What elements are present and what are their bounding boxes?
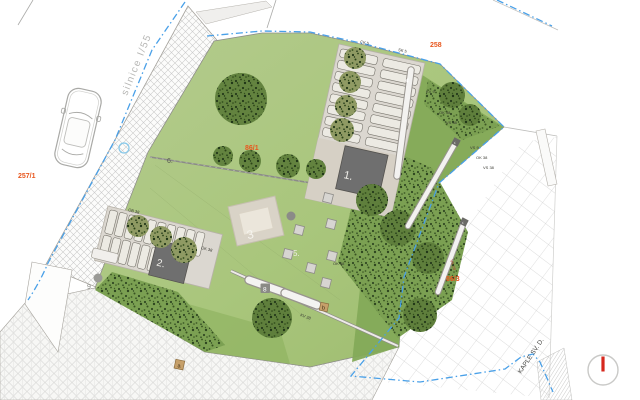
- svg-text:VS 38: VS 38: [483, 165, 495, 170]
- site-plan-page: 1. 2. 3: [0, 0, 640, 400]
- marker-b: b: [319, 302, 328, 311]
- svg-text:OK 38: OK 38: [333, 261, 345, 266]
- svg-text:VS 9: VS 9: [470, 145, 479, 150]
- parcel-258: 258: [430, 42, 442, 49]
- parcel-257-1: 257/1: [18, 173, 36, 180]
- area-label-9: 9.: [87, 284, 93, 291]
- svg-text:8: 8: [263, 287, 267, 294]
- area-label-fence: 6.: [167, 158, 173, 165]
- point-marker-9: [94, 274, 103, 283]
- site-plan-drawing: 1. 2. 3: [0, 0, 640, 400]
- parcel-86-3: 86/3: [446, 276, 460, 283]
- marker-a: a: [174, 359, 185, 370]
- svg-text:b: b: [322, 306, 325, 312]
- svg-text:OK 38: OK 38: [476, 155, 488, 160]
- area-label-bench: 8: [261, 284, 271, 294]
- svg-text:VS 38: VS 38: [446, 120, 458, 125]
- area-label-stones: 5.: [293, 249, 300, 258]
- svg-text:KV 9: KV 9: [426, 89, 435, 94]
- parcel-86-1: 86/1: [245, 145, 259, 152]
- point-marker-center: [287, 212, 296, 221]
- svg-text:OK 38: OK 38: [439, 110, 451, 115]
